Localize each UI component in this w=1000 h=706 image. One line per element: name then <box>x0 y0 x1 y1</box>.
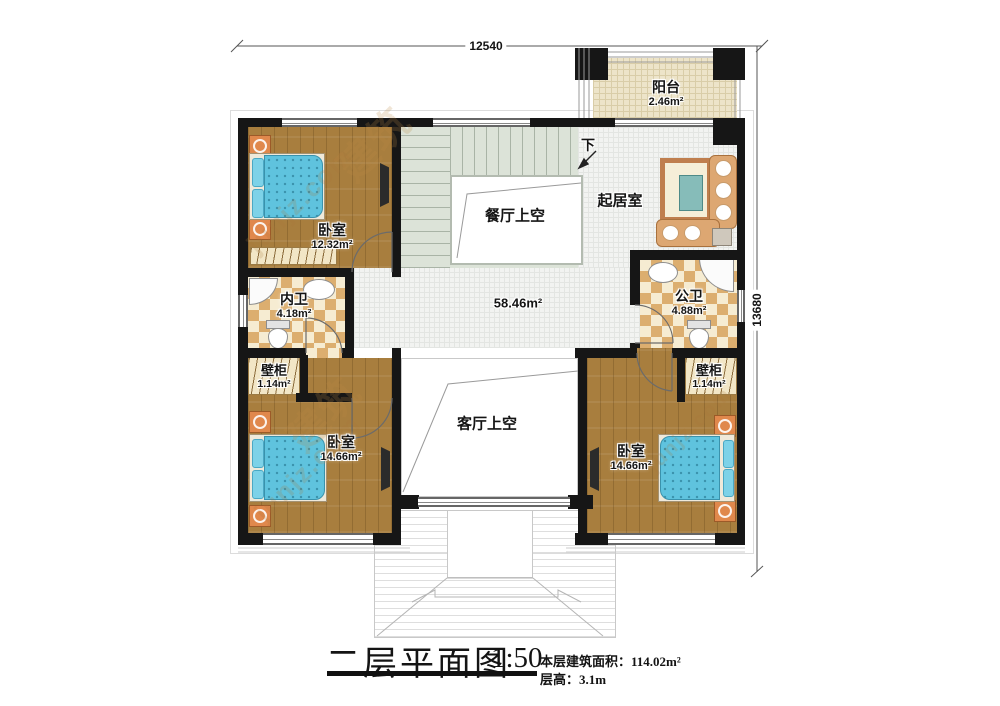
room-name: 壁柜 <box>692 364 725 379</box>
room-area: 4.18m² <box>277 308 312 320</box>
bed-mattress <box>264 436 325 500</box>
nightstand <box>249 218 271 240</box>
room-area: 14.66m² <box>611 460 652 472</box>
stair-treads-horizontal <box>401 127 450 268</box>
room-name: 客厅上空 <box>457 416 517 433</box>
label-balcony: 阳台 2.46m² <box>649 80 684 108</box>
room-area: 4.88m² <box>672 305 707 317</box>
nightstand <box>714 500 736 522</box>
pillow <box>252 189 264 218</box>
wall-bedroom2-top-a <box>296 393 352 402</box>
plan-title: 二层平面图 <box>326 636 511 685</box>
porch-roof-inner <box>447 510 533 578</box>
dimension-height: 13680 <box>750 289 764 330</box>
sofa-cushion <box>715 182 732 199</box>
window-bedroom3-bottom <box>608 533 715 545</box>
floor-area-label: 本层建筑面积： <box>540 654 631 669</box>
label-living-void: 客厅上空 <box>457 417 517 434</box>
wall-bedroom1-bottom <box>238 268 352 277</box>
balcony-column-right <box>713 48 745 80</box>
label-bedroom3: 卧室 14.66m² <box>611 444 652 472</box>
room-area: 1.14m² <box>257 378 290 390</box>
pillow <box>723 440 734 468</box>
wall-publicbath-left-b <box>630 343 640 348</box>
label-bedroom2: 卧室 14.66m² <box>321 435 362 463</box>
label-closet-right: 壁柜 1.14m² <box>692 364 725 390</box>
pillow <box>252 439 264 468</box>
label-hall-area: 58.46m² <box>494 297 542 312</box>
window-center-band <box>418 497 570 507</box>
wall-south-right-a <box>575 348 637 358</box>
floor-height-value: 3.1m <box>579 672 606 687</box>
tv <box>380 163 389 207</box>
room-name: 卧室 <box>611 444 652 460</box>
floor-height-info: 层高：3.1m <box>540 669 606 688</box>
room-name: 壁柜 <box>257 364 290 379</box>
bed-mattress <box>660 436 720 500</box>
side-table <box>712 228 732 246</box>
wall-right <box>737 118 745 545</box>
wall-innerbath-bottom-a <box>238 348 306 358</box>
window-publicbath-right <box>737 290 745 322</box>
wall-innerbath-right <box>345 268 354 358</box>
tv <box>590 447 599 491</box>
stair-treads-vertical <box>450 127 578 175</box>
label-stairs-down: 下 <box>581 138 595 154</box>
sofa-cushion <box>715 204 732 221</box>
floor-area-info: 本层建筑面积：114.02m² <box>540 651 681 670</box>
wall-publicbath-top <box>630 250 737 260</box>
label-closet-left: 壁柜 1.14m² <box>257 364 290 390</box>
room-area: 12.32m² <box>312 239 353 251</box>
wall-innerbath-bottom-b <box>342 348 354 358</box>
room-name: 餐厅上空 <box>485 208 545 225</box>
room-name: 内卫 <box>277 292 312 308</box>
balcony-door <box>615 118 713 127</box>
nightstand <box>249 411 271 433</box>
window-bedroom1-top <box>282 118 357 127</box>
room-name: 卧室 <box>321 435 362 451</box>
floor-plan-page: { "dimensions": { "width": "12540", "hei… <box>0 0 1000 706</box>
label-inner-bath: 内卫 4.18m² <box>277 292 312 320</box>
window-bedroom2-bottom <box>263 533 373 545</box>
window-innerbath-left <box>238 295 248 327</box>
balcony-column-left <box>575 48 608 80</box>
wall-center-stub-right <box>568 495 593 509</box>
room-name: 阳台 <box>649 80 684 96</box>
wall-under-column <box>713 127 745 145</box>
pillow <box>723 469 734 497</box>
sofa-cushion <box>662 225 679 241</box>
pillow <box>252 158 264 187</box>
bed-mattress <box>264 155 323 218</box>
window-stairs-top <box>433 118 530 127</box>
inner-bath-door-gap-floor <box>306 348 342 358</box>
label-public-bath: 公卫 4.88m² <box>672 289 707 317</box>
wall-center-stub-left <box>395 495 419 509</box>
stairs-down-text: 下 <box>581 138 595 154</box>
wall-publicbath-left-a <box>630 260 640 305</box>
tv <box>381 447 390 491</box>
pillow <box>252 470 264 499</box>
room-area: 14.66m² <box>321 451 362 463</box>
wall-left <box>238 118 248 545</box>
title-underline <box>327 671 537 676</box>
label-dining-void: 餐厅上空 <box>485 209 545 226</box>
floor-area-value: 114.02m² <box>631 654 681 669</box>
nightstand <box>249 505 271 527</box>
label-living-room: 起居室 <box>597 194 642 211</box>
room-name: 起居室 <box>597 193 642 210</box>
room-area: 2.46m² <box>649 96 684 108</box>
coffee-table <box>679 175 703 211</box>
room-name: 卧室 <box>312 223 353 239</box>
sofa-cushion <box>684 225 701 241</box>
dimension-width: 12540 <box>465 39 506 53</box>
room-name: 公卫 <box>672 289 707 305</box>
sink <box>648 262 678 283</box>
sofa-cushion <box>715 160 732 177</box>
room-area: 1.14m² <box>692 378 725 390</box>
wall-closet-right-stub <box>677 355 685 402</box>
label-bedroom1: 卧室 12.32m² <box>312 223 353 251</box>
room-area: 58.46m² <box>494 296 542 311</box>
floor-height-label: 层高： <box>540 672 579 687</box>
wall-bedroom1-right <box>392 127 401 277</box>
